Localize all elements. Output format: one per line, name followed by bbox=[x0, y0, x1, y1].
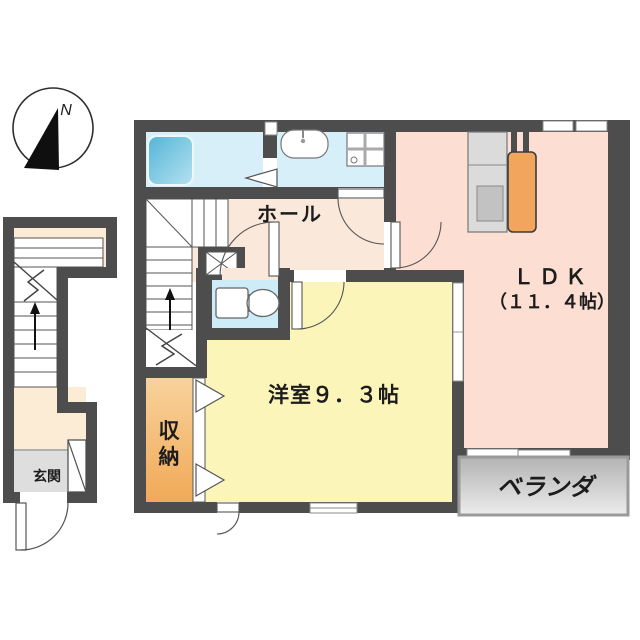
small-window bbox=[265, 122, 277, 135]
storage-label-char2: 納 bbox=[159, 445, 180, 469]
veranda-label: ベランダ bbox=[497, 474, 597, 501]
genkan-label: 玄関 bbox=[33, 468, 61, 484]
top-window-left bbox=[543, 121, 573, 131]
annex-staircase bbox=[14, 262, 57, 387]
entrance-door-leaf bbox=[16, 503, 26, 550]
top-window-right bbox=[576, 121, 607, 131]
compass-north-label: N bbox=[60, 102, 72, 119]
washing-machine-pan bbox=[347, 133, 384, 166]
veranda: ベランダ bbox=[459, 457, 628, 515]
western-room-label: 洋室９．３帖 bbox=[268, 383, 400, 407]
floor-plan: N bbox=[0, 0, 640, 640]
exterior-door-leaf bbox=[217, 503, 239, 512]
ldk-door-leaf bbox=[391, 222, 400, 268]
washbasin bbox=[281, 130, 328, 158]
annex-stairs-top bbox=[14, 238, 103, 267]
room-partition-sliding bbox=[453, 283, 463, 381]
floor-plan-canvas: N bbox=[0, 0, 640, 640]
hall-label: ホール bbox=[257, 204, 323, 226]
kitchen-sink bbox=[477, 186, 503, 221]
ldk-size-label: （１１．４帖） bbox=[489, 291, 615, 312]
western-room-door-leaf bbox=[292, 282, 302, 329]
washroom-door-leaf bbox=[338, 189, 384, 198]
stair-cut-area bbox=[146, 330, 196, 367]
kitchen-counter bbox=[468, 132, 507, 232]
toilet-fixture bbox=[216, 288, 279, 318]
shoe-cabinet bbox=[68, 440, 86, 492]
bathtub bbox=[148, 136, 193, 185]
storage-label-char1: 収 bbox=[159, 420, 181, 443]
ldk-label: ＬＤＫ bbox=[513, 266, 591, 289]
refrigerator bbox=[508, 152, 536, 232]
toilet-door-leaf bbox=[269, 222, 279, 276]
